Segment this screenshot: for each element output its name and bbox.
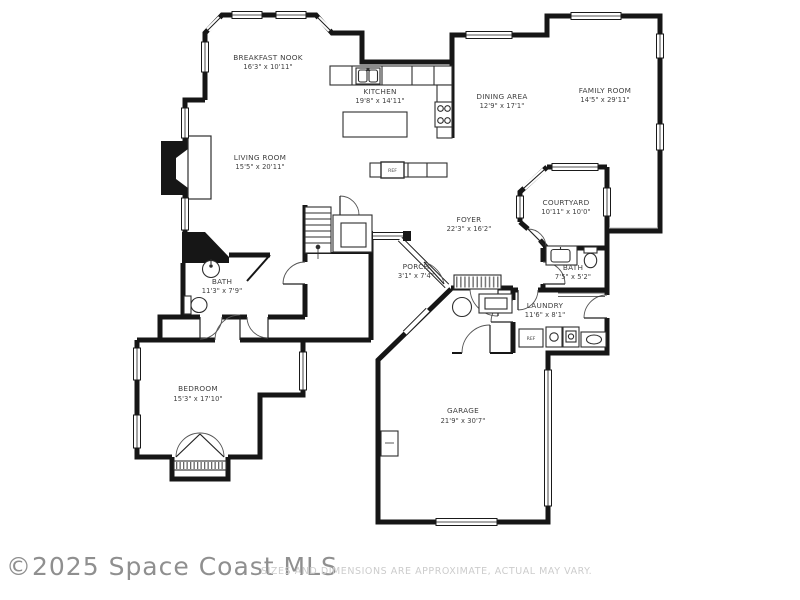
- bath-court-toilet-icon: [584, 247, 597, 268]
- room-label-garage: GARAGE: [447, 406, 479, 415]
- room-dims-dining-area: 12'9" x 17'1": [480, 102, 525, 110]
- room-dims-living-room: 15'5" x 20'11": [235, 163, 284, 171]
- room-label-breakfast-nook: BREAKFAST NOOK: [233, 53, 303, 62]
- laundry-shelf: [558, 293, 605, 297]
- room-dims-family-room: 14'5" x 29'11": [580, 96, 629, 104]
- entry-steps: [454, 275, 501, 289]
- room-label-family-room: FAMILY ROOM: [579, 86, 631, 95]
- range-icon: [435, 102, 452, 127]
- room-dims-porch: 3'1" x 7'4": [398, 272, 434, 280]
- room-label-courtyard: COURTYARD: [543, 198, 590, 207]
- room-dims-bedroom: 15'3" x 17'10": [173, 395, 222, 403]
- entry-closet: [479, 294, 512, 313]
- laundry-sink-icon: [581, 332, 606, 347]
- kitchen-sink-icon: [356, 68, 380, 84]
- washer-icon: [546, 327, 562, 347]
- room-dims-breakfast-nook: 16'3" x 10'11": [243, 63, 292, 71]
- water-heater: [381, 431, 398, 456]
- room-label-bedroom: BEDROOM: [178, 384, 218, 393]
- kitchen-island: [343, 112, 407, 137]
- room-label-bath-main: BATH: [212, 277, 232, 286]
- room-dims-foyer: 22'3" x 16'2": [447, 225, 492, 233]
- room-dims-laundry: 11'6" x 8'1": [525, 311, 566, 319]
- laundry-ref-label: REF: [527, 336, 536, 342]
- room-label-kitchen: KITCHEN: [363, 87, 396, 96]
- foyer-table: [453, 298, 472, 317]
- stairs: [305, 207, 331, 259]
- room-label-foyer: FOYER: [457, 215, 482, 224]
- dryer-icon: [563, 327, 579, 347]
- room-label-porch: PORCH: [403, 262, 430, 271]
- room-label-dining-area: DINING AREA: [476, 92, 527, 101]
- room-dims-kitchen: 19'8" x 14'11": [355, 97, 404, 105]
- room-dims-bath-court: 7'5" x 5'2": [555, 273, 591, 281]
- bedroom-bay-window: [174, 461, 226, 470]
- room-dims-courtyard: 10'11" x 10'0": [541, 208, 590, 216]
- room-label-laundry: LAUNDRY: [527, 301, 564, 310]
- disclaimer: SIZES AND DIMENSIONS ARE APPROXIMATE, AC…: [261, 566, 592, 577]
- floorplan-drawing: BREAKFAST NOOK 16'3" x 10'11" KITCHEN 19…: [0, 0, 800, 600]
- room-dims-bath-main: 11'3" x 7'9": [202, 287, 243, 295]
- fireplace: [161, 136, 211, 199]
- bath-corner-wall: [182, 232, 229, 263]
- bath-main-toilet-icon: [184, 296, 207, 314]
- floorplan-canvas: BREAKFAST NOOK 16'3" x 10'11" KITCHEN 19…: [0, 0, 800, 600]
- room-label-living-room: LIVING ROOM: [234, 153, 286, 162]
- kitchen-ref-label: REF: [388, 168, 397, 174]
- stair-closet: [333, 215, 372, 252]
- room-dims-garage: 21'9" x 30'7": [441, 417, 486, 425]
- room-label-bath-court: BATH: [563, 263, 583, 272]
